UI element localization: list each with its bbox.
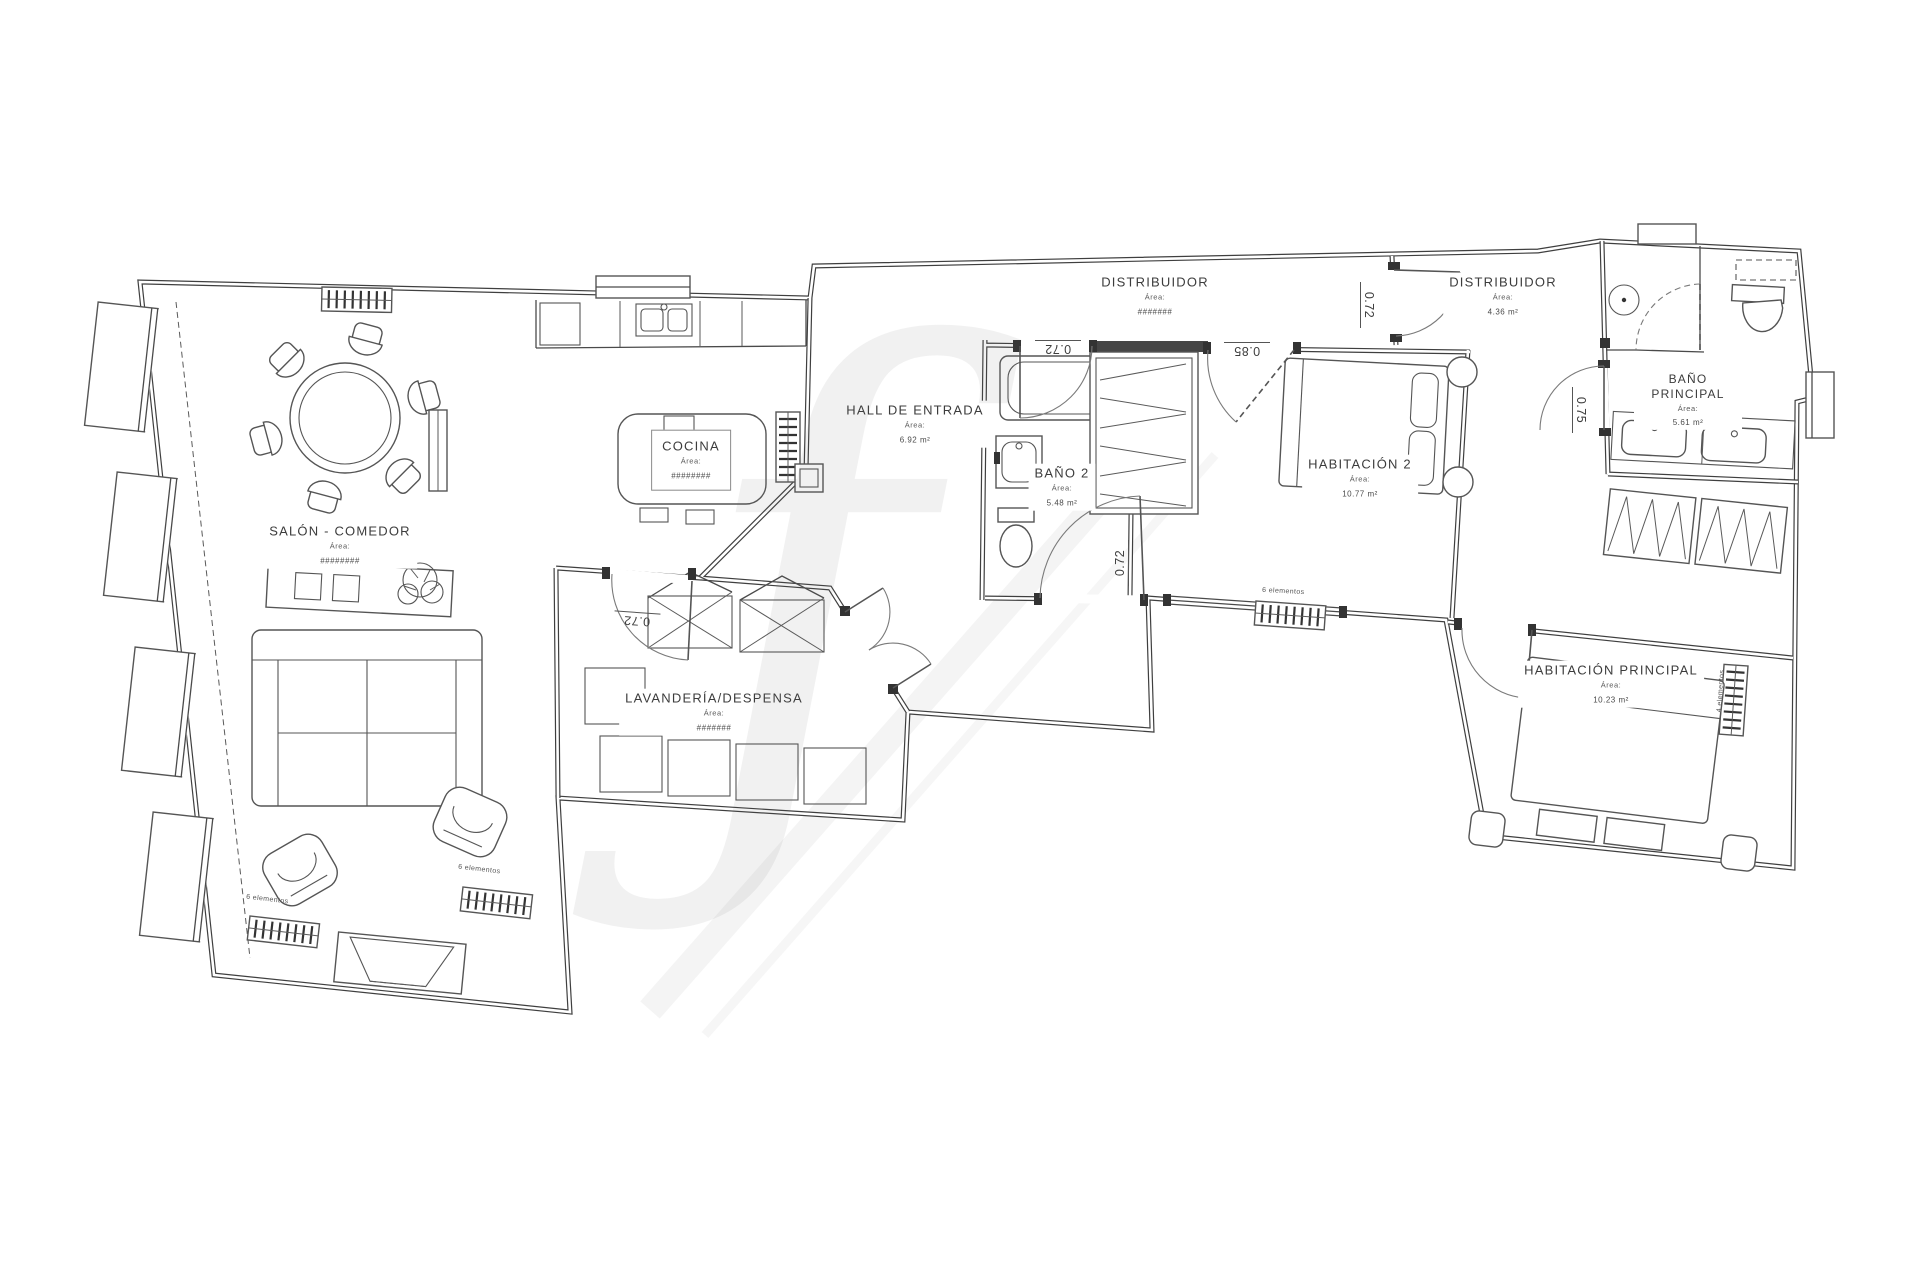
appliance	[736, 744, 798, 800]
kitchen-counter	[536, 300, 806, 348]
wardrobe-back-wall	[1092, 341, 1208, 352]
room-label-habitacion-2: HABITACIÓN 2 Área: 10.77 m²	[1302, 455, 1418, 502]
bench	[1604, 818, 1665, 851]
side-table	[1468, 810, 1506, 848]
room-label-cocina: COCINA Área: ########	[651, 430, 731, 491]
nightstand	[1447, 357, 1477, 387]
dimension-bano2-inner-door: 0.72	[1113, 540, 1129, 586]
appliance	[600, 736, 662, 792]
entrance-door	[840, 588, 931, 694]
stool	[640, 508, 668, 522]
shelf	[1736, 260, 1796, 280]
fridge	[540, 303, 580, 345]
shower-valve	[1600, 338, 1610, 348]
bay-window	[104, 472, 178, 602]
dimension-habitacion2-door: 0.85	[1224, 342, 1270, 358]
sofa	[252, 630, 482, 806]
radiator	[247, 916, 319, 948]
floor-plan: SALÓN - COMEDOR Área: ######## COCINA Ár…	[0, 0, 1920, 1280]
bay-window	[140, 812, 214, 942]
side-table	[1720, 834, 1758, 872]
dimension-lavanderia-door: 0.72	[613, 610, 660, 629]
radiator	[321, 287, 391, 312]
kitchen-island	[429, 410, 823, 524]
tv-console	[266, 561, 453, 617]
room-label-bano-principal: BAÑO PRINCIPAL Área: 5.61 m²	[1634, 370, 1742, 430]
bano-principal-fixtures	[1600, 246, 1796, 469]
bay-window	[122, 647, 196, 777]
dressing-wardrobes	[1603, 489, 1787, 573]
stool	[686, 510, 714, 524]
dimension-distribuidor-door: 0.72	[1360, 282, 1376, 328]
wardrobe	[1090, 352, 1198, 514]
dimension-bano-principal-door: 0.75	[1572, 387, 1588, 433]
bench	[1536, 809, 1597, 842]
wall-frame	[795, 464, 823, 492]
dining-table	[248, 321, 442, 515]
room-label-distribuidor-2: DISTRIBUIDOR Área: 4.36 m²	[1443, 273, 1563, 320]
room-label-bano2: BAÑO 2 Área: 5.48 m²	[1029, 464, 1096, 511]
right-window	[1806, 372, 1834, 438]
room-label-lavanderia: LAVANDERÍA/DESPENSA Área: #######	[619, 689, 809, 736]
fireplace	[334, 932, 466, 994]
bay-window	[85, 302, 159, 432]
bathroom-window	[1638, 224, 1696, 244]
toilet	[998, 508, 1034, 567]
room-label-distribuidor-1: DISTRIBUIDOR Área: #######	[1095, 273, 1215, 320]
dimension-bano2-door: 0.72	[1035, 340, 1081, 356]
radiator	[460, 887, 532, 919]
appliance	[668, 740, 730, 796]
radiator	[1254, 601, 1326, 630]
nightstand	[1443, 467, 1473, 497]
kitchen-sink	[636, 304, 692, 336]
room-label-hall: HALL DE ENTRADA Área: 6.92 m²	[840, 401, 989, 448]
habitacion2-furniture	[1090, 352, 1477, 514]
toilet	[1732, 285, 1785, 333]
room-label-habitacion-principal: HABITACIÓN PRINCIPAL Área: 10.23 m²	[1518, 661, 1704, 708]
shower	[1600, 246, 1704, 352]
floor-plan-drawing	[0, 0, 1920, 1280]
room-label-salon: SALÓN - COMEDOR Área: ########	[263, 522, 417, 569]
